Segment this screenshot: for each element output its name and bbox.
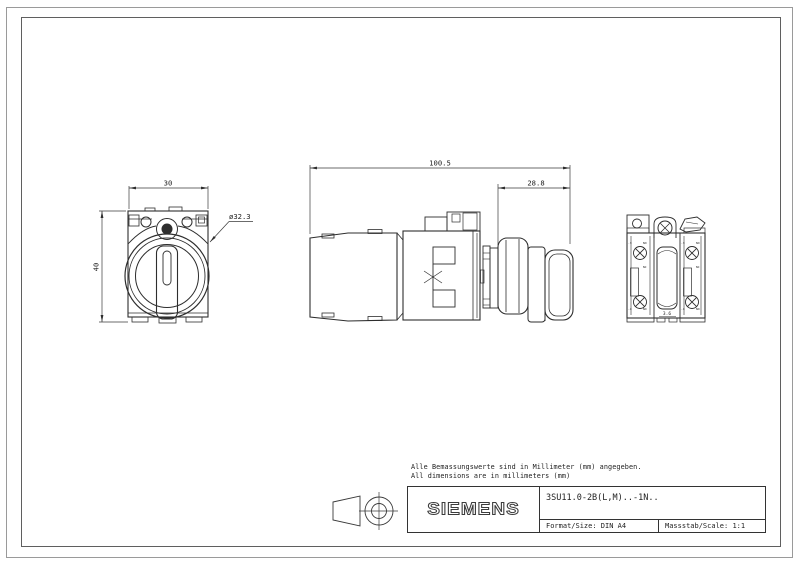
dim-front-height: 40 — [92, 263, 101, 272]
part-number: 3SU11.0-2B(L,M)..-1N.. — [540, 487, 765, 520]
title-block-right: 3SU11.0-2B(L,M)..-1N.. Format/Size: DIN … — [540, 487, 765, 532]
drawing-sheet: 30 40 ø32.3 — [0, 0, 800, 565]
svg-text:NO: NO — [643, 241, 647, 245]
brand-cell: SIEMENS — [408, 487, 540, 532]
side-knob-collar — [528, 247, 545, 322]
rear-terminal-screws — [634, 247, 699, 309]
format-label: Format/Size: — [546, 522, 597, 530]
format-value: DIN A4 — [601, 522, 626, 530]
svg-text:.4: .4 — [681, 307, 685, 311]
svg-text:.3: .3 — [681, 241, 685, 245]
drawing-canvas: 30 40 ø32.3 — [0, 0, 800, 565]
svg-text:NC: NC — [643, 265, 647, 269]
svg-text:NC: NC — [696, 265, 700, 269]
front-height-dimension — [99, 211, 128, 322]
scale-value: 1:1 — [732, 522, 745, 530]
format-cell: Format/Size: DIN A4 — [540, 520, 659, 532]
dim-side-head: 28.8 — [527, 179, 544, 188]
svg-text:NO: NO — [643, 307, 647, 311]
dim-front-diameter: ø32.3 — [229, 212, 251, 221]
rear-view: 3.6 .3 NO NC .4 NO .3 NO NC .4 NO — [627, 215, 705, 322]
front-screw-hole-left — [141, 217, 151, 227]
front-bezel-inner — [129, 238, 205, 314]
side-head-dimension — [498, 184, 570, 245]
front-knob-face — [136, 245, 199, 308]
dim-side-overall: 100.5 — [429, 159, 451, 168]
front-screw-hole-right — [182, 217, 192, 227]
side-contact-block — [310, 233, 397, 321]
side-view: 100.5 28.8 — [310, 159, 573, 323]
note-line-german: Alle Bemassungswerte sind in Millimeter … — [411, 463, 642, 472]
rear-center-window — [657, 247, 677, 309]
scale-cell: Massstab/Scale: 1:1 — [659, 520, 765, 532]
dim-front-width: 30 — [164, 179, 173, 188]
side-overall-dimension — [310, 165, 570, 244]
svg-text:.3: .3 — [628, 241, 632, 245]
svg-text:.4: .4 — [628, 307, 632, 311]
dimension-notes: Alle Bemassungswerte sind in Millimeter … — [411, 463, 642, 480]
front-view: 30 40 ø32.3 — [92, 179, 254, 324]
projection-symbol-icon — [333, 492, 398, 530]
dim-rear-center: 3.6 — [663, 311, 671, 317]
svg-text:NO: NO — [696, 241, 700, 245]
front-selector-lever — [157, 246, 178, 319]
note-line-english: All dimensions are in millimeters (mm) — [411, 472, 642, 481]
svg-text:NO: NO — [696, 307, 700, 311]
front-width-dimension — [129, 186, 208, 209]
side-actuator-head — [498, 238, 528, 314]
siemens-logo: SIEMENS — [427, 499, 520, 519]
front-diameter-leader — [210, 222, 253, 243]
scale-label: Massstab/Scale: — [665, 522, 728, 530]
front-bezel-outer — [125, 234, 209, 318]
title-block: SIEMENS 3SU11.0-2B(L,M)..-1N.. Format/Si… — [407, 486, 766, 533]
